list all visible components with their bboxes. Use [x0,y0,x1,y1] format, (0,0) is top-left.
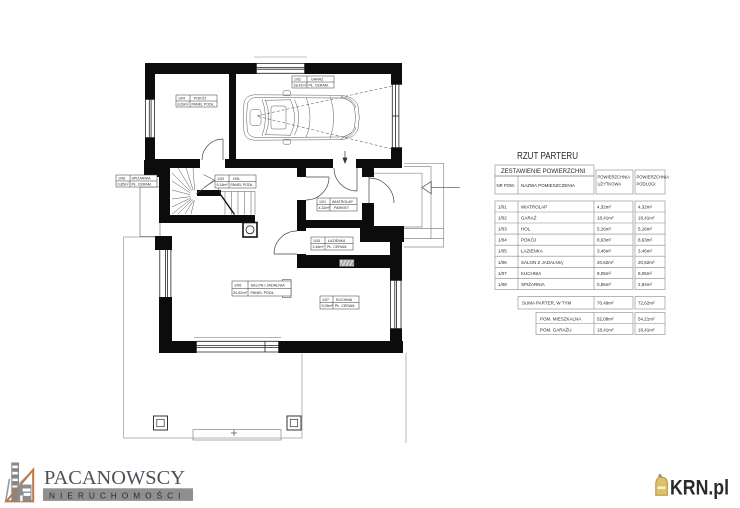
svg-text:18,41m²: 18,41m² [597,328,614,333]
svg-text:0,85m²: 0,85m² [118,183,130,187]
svg-text:KRN.pl: KRN.pl [670,477,729,500]
svg-text:SALON Z JADALNIĄ: SALON Z JADALNIĄ [521,260,564,265]
svg-text:8,63m²: 8,63m² [178,103,190,107]
svg-text:1/07: 1/07 [498,271,507,276]
svg-text:SPIŻARNIA: SPIŻARNIA [521,281,545,287]
svg-text:8,63m²: 8,63m² [597,238,612,243]
svg-text:1/05: 1/05 [498,249,507,254]
svg-text:PŁ. CERAM.: PŁ. CERAM. [327,245,347,249]
svg-text:SPIŻARNIA: SPIŻARNIA [132,176,152,181]
svg-text:18,41m²: 18,41m² [597,216,614,221]
svg-text:5,16m²: 5,16m² [638,227,653,232]
svg-text:PŁ. CERAM.: PŁ. CERAM. [309,84,329,88]
svg-text:1/04: 1/04 [498,238,507,243]
svg-text:1/04: 1/04 [178,97,185,101]
svg-text:NIERUCHOMOŚCI: NIERUCHOMOŚCI [49,489,185,500]
svg-text:1/07: 1/07 [322,298,329,302]
svg-text:3,46m²: 3,46m² [638,249,653,254]
svg-text:1/02: 1/02 [294,78,301,82]
svg-text:PŁ. CERAM.: PŁ. CERAM. [335,304,355,308]
svg-text:KUCHNIA: KUCHNIA [336,298,353,302]
svg-text:1/02: 1/02 [498,216,507,221]
svg-text:PŁ. CERAM.: PŁ. CERAM. [132,183,152,187]
svg-text:1/01: 1/01 [319,200,326,204]
svg-text:5,16m²: 5,16m² [217,183,229,187]
svg-text:0,85m²: 0,85m² [597,282,612,287]
svg-text:PARKIET: PARKIET [334,206,350,210]
svg-text:1/08: 1/08 [118,177,125,181]
svg-text:NR POM.: NR POM. [497,183,515,188]
svg-text:72,62m²: 72,62m² [638,301,655,306]
svg-text:KUCHNIA: KUCHNIA [521,271,541,276]
svg-text:UŻYTKOWA: UŻYTKOWA [598,182,622,187]
svg-text:POM. MIESZKALNA: POM. MIESZKALNA [540,317,581,322]
svg-text:ŁAZIENKA: ŁAZIENKA [521,249,543,254]
svg-text:3,46m²: 3,46m² [597,249,612,254]
svg-text:SUMA PARTER, W TYM: SUMA PARTER, W TYM [522,301,572,306]
svg-text:PANEL PODŁ.: PANEL PODŁ. [192,103,215,107]
svg-text:4,32m²: 4,32m² [597,205,612,210]
svg-text:PODŁOGI: PODŁOGI [637,182,656,187]
svg-text:1/05: 1/05 [313,239,320,243]
svg-text:1/03: 1/03 [217,177,224,181]
svg-text:POWIERZCHNIA: POWIERZCHNIA [598,175,631,180]
svg-text:1/06: 1/06 [498,260,507,265]
svg-text:WIATROŁAP: WIATROŁAP [332,200,354,204]
svg-text:1/01: 1/01 [498,205,507,210]
svg-text:PACANOWSCY: PACANOWSCY [44,468,185,489]
svg-text:WIATROŁAP: WIATROŁAP [521,205,547,210]
svg-text:1/08: 1/08 [498,282,507,287]
svg-text:RZUT PARTERU: RZUT PARTERU [517,150,578,162]
svg-text:NAZWA POMIESZCZENIA: NAZWA POMIESZCZENIA [521,183,575,188]
svg-text:9,05m²: 9,05m² [322,304,334,308]
svg-text:18,41m²: 18,41m² [638,328,655,333]
svg-text:20,62m²: 20,62m² [638,260,655,265]
svg-text:20,62m²: 20,62m² [597,260,614,265]
svg-text:52,08m²: 52,08m² [597,317,614,322]
svg-text:PANEL PODŁ.: PANEL PODŁ. [231,183,254,187]
svg-text:HOL: HOL [521,227,531,232]
svg-text:1/06: 1/06 [234,283,241,287]
svg-text:SALON I JADALNIA: SALON I JADALNIA [251,283,286,287]
svg-text:ŁAZIENKA: ŁAZIENKA [328,239,346,243]
svg-text:18,41m²: 18,41m² [638,216,655,221]
svg-text:POKÓJ: POKÓJ [194,96,206,101]
svg-text:4,32m²: 4,32m² [319,206,331,210]
svg-text:GARAŻ: GARAŻ [311,77,324,82]
svg-text:18,41m²: 18,41m² [294,84,308,88]
svg-text:9,05m²: 9,05m² [638,271,653,276]
svg-text:2,94m²: 2,94m² [638,282,653,287]
svg-text:8,63m²: 8,63m² [638,238,653,243]
svg-text:POKÓJ: POKÓJ [521,237,536,243]
svg-text:70,49m²: 70,49m² [597,301,614,306]
svg-text:20,62m²: 20,62m² [233,291,248,295]
svg-text:1/03: 1/03 [498,227,507,232]
svg-text:5,16m²: 5,16m² [597,227,612,232]
svg-text:HOL: HOL [233,177,240,181]
svg-text:POM. GARAŻU: POM. GARAŻU [540,327,572,333]
svg-text:ZESTAWIENIE POWIERZCHNI: ZESTAWIENIE POWIERZCHNI [501,169,586,175]
svg-text:POWIERZCHNIA: POWIERZCHNIA [637,175,670,180]
svg-text:4,32m²: 4,32m² [638,205,653,210]
svg-text:PANEL PODŁ.: PANEL PODŁ. [251,291,275,295]
svg-text:9,05m²: 9,05m² [597,271,612,276]
svg-text:3,46m²: 3,46m² [313,245,325,249]
svg-text:54,21m²: 54,21m² [638,317,655,322]
svg-text:GARAŻ: GARAŻ [521,215,537,221]
